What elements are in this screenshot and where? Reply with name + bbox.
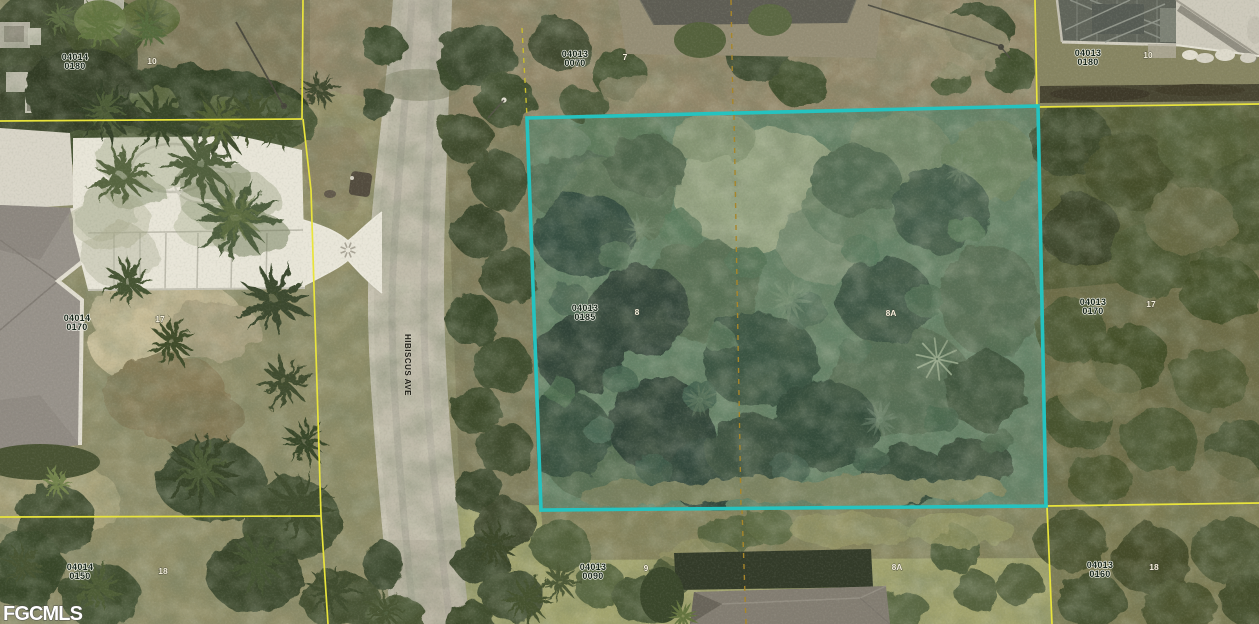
svg-text:0150: 0150	[69, 571, 90, 581]
svg-text:8: 8	[635, 307, 640, 317]
svg-text:FGCMLS: FGCMLS	[3, 603, 83, 624]
svg-text:18: 18	[1149, 562, 1159, 572]
svg-text:17: 17	[155, 314, 165, 324]
svg-text:0070: 0070	[564, 58, 585, 68]
svg-text:0180: 0180	[1077, 57, 1098, 67]
svg-text:8A: 8A	[886, 308, 897, 318]
svg-text:8A: 8A	[892, 562, 903, 572]
svg-text:17: 17	[1146, 299, 1156, 309]
svg-text:HIBISCUS AVE: HIBISCUS AVE	[403, 334, 412, 396]
svg-text:0185: 0185	[574, 312, 595, 322]
svg-text:9: 9	[644, 563, 649, 573]
svg-text:7: 7	[623, 52, 628, 62]
svg-text:0160: 0160	[1089, 569, 1110, 579]
svg-text:0170: 0170	[66, 322, 87, 332]
svg-text:0090: 0090	[582, 571, 603, 581]
svg-text:0180: 0180	[64, 61, 85, 71]
svg-text:0170: 0170	[1082, 306, 1103, 316]
svg-text:10: 10	[147, 56, 157, 66]
svg-text:18: 18	[158, 566, 168, 576]
svg-text:10: 10	[1143, 50, 1153, 60]
